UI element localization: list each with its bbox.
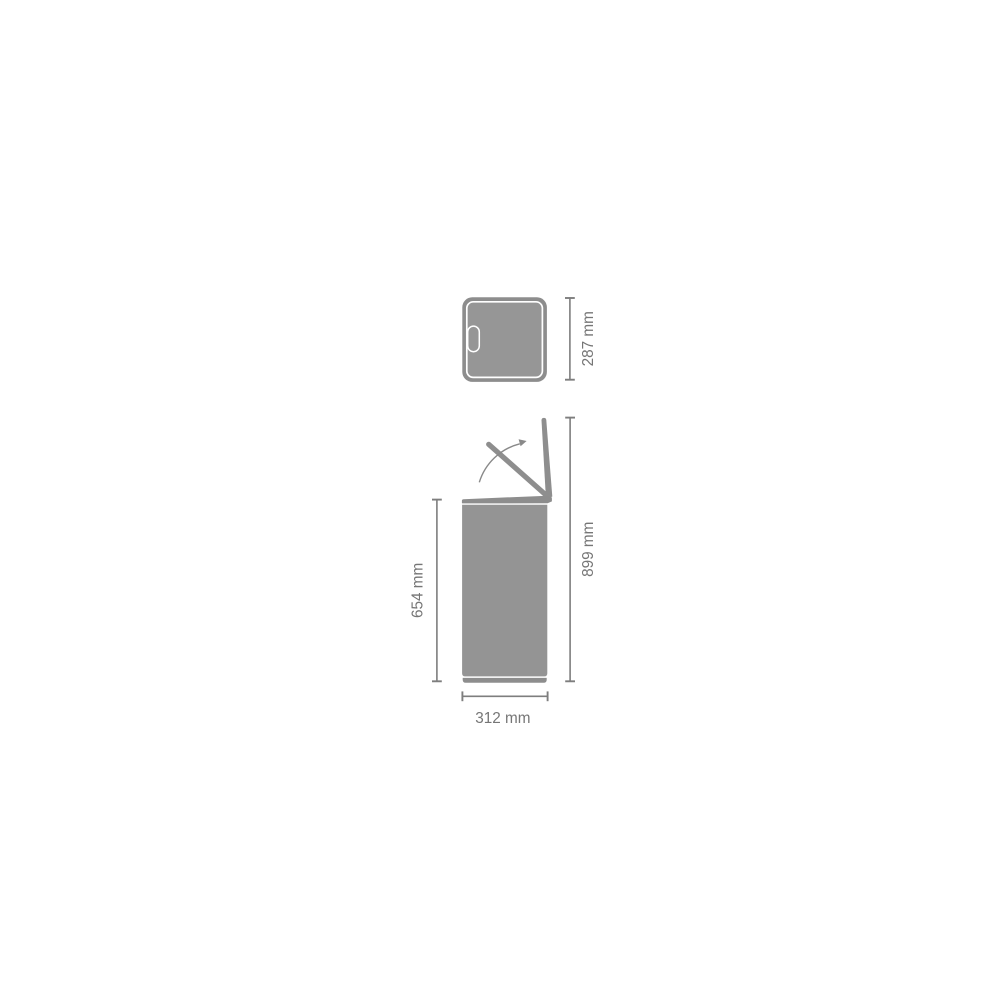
svg-text:312 mm: 312 mm xyxy=(475,710,530,727)
svg-text:899 mm: 899 mm xyxy=(580,522,597,577)
svg-text:654 mm: 654 mm xyxy=(409,563,426,618)
svg-text:287 mm: 287 mm xyxy=(580,311,597,366)
